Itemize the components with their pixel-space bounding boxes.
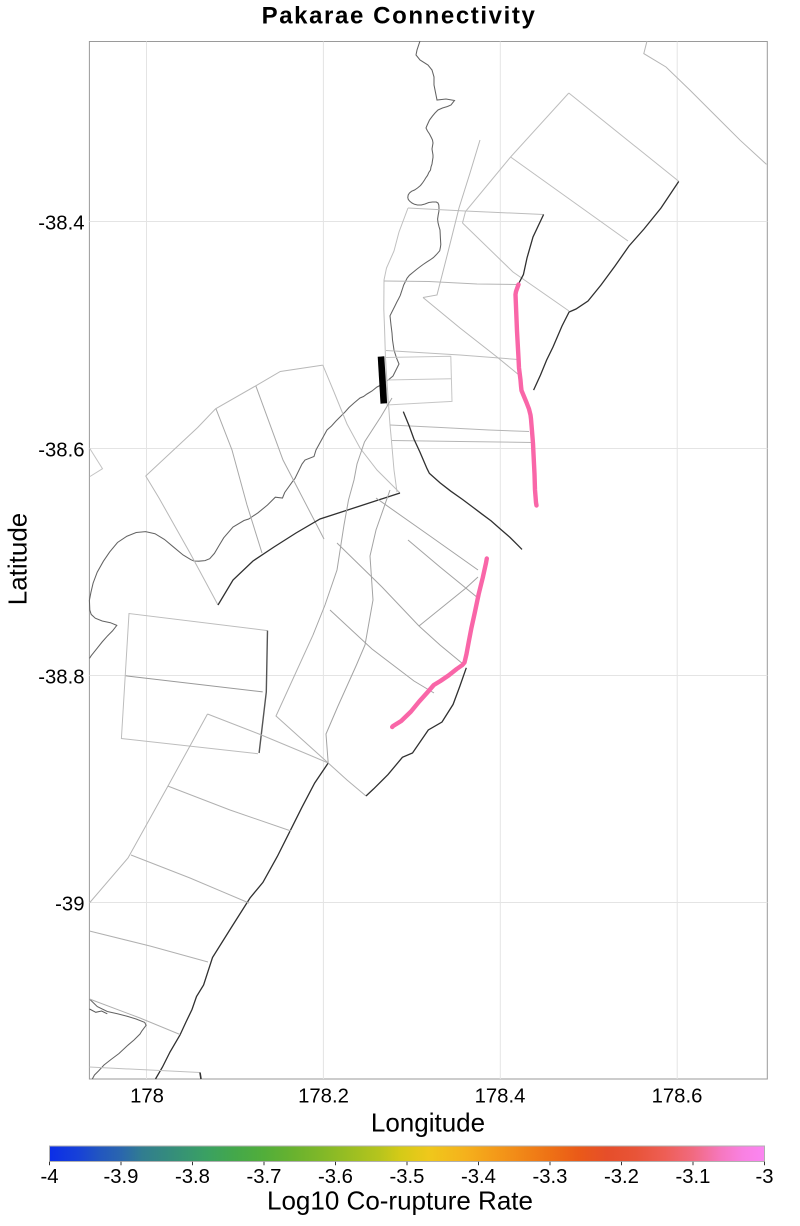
svg-text:178.2: 178.2 bbox=[298, 1086, 349, 1108]
svg-text:-3.2: -3.2 bbox=[604, 1166, 639, 1188]
svg-text:-38.6: -38.6 bbox=[38, 440, 84, 462]
svg-text:-38.4: -38.4 bbox=[38, 213, 84, 235]
svg-text:-3.3: -3.3 bbox=[533, 1166, 568, 1188]
svg-text:-3: -3 bbox=[755, 1166, 773, 1188]
svg-text:Log10 Co-rupture Rate: Log10 Co-rupture Rate bbox=[267, 1186, 533, 1216]
svg-text:-38.8: -38.8 bbox=[38, 667, 84, 689]
svg-text:-3.1: -3.1 bbox=[676, 1166, 711, 1188]
svg-text:178: 178 bbox=[130, 1086, 164, 1108]
svg-text:-39: -39 bbox=[55, 894, 84, 916]
svg-text:178.4: 178.4 bbox=[475, 1086, 526, 1108]
svg-text:178.6: 178.6 bbox=[652, 1086, 703, 1108]
svg-text:Longitude: Longitude bbox=[371, 1108, 485, 1138]
svg-text:-4: -4 bbox=[40, 1166, 58, 1188]
svg-text:Pakarae Connectivity: Pakarae Connectivity bbox=[262, 3, 537, 30]
svg-text:-3.9: -3.9 bbox=[104, 1166, 139, 1188]
svg-text:-3.8: -3.8 bbox=[175, 1166, 210, 1188]
svg-text:Latitude: Latitude bbox=[3, 513, 33, 606]
